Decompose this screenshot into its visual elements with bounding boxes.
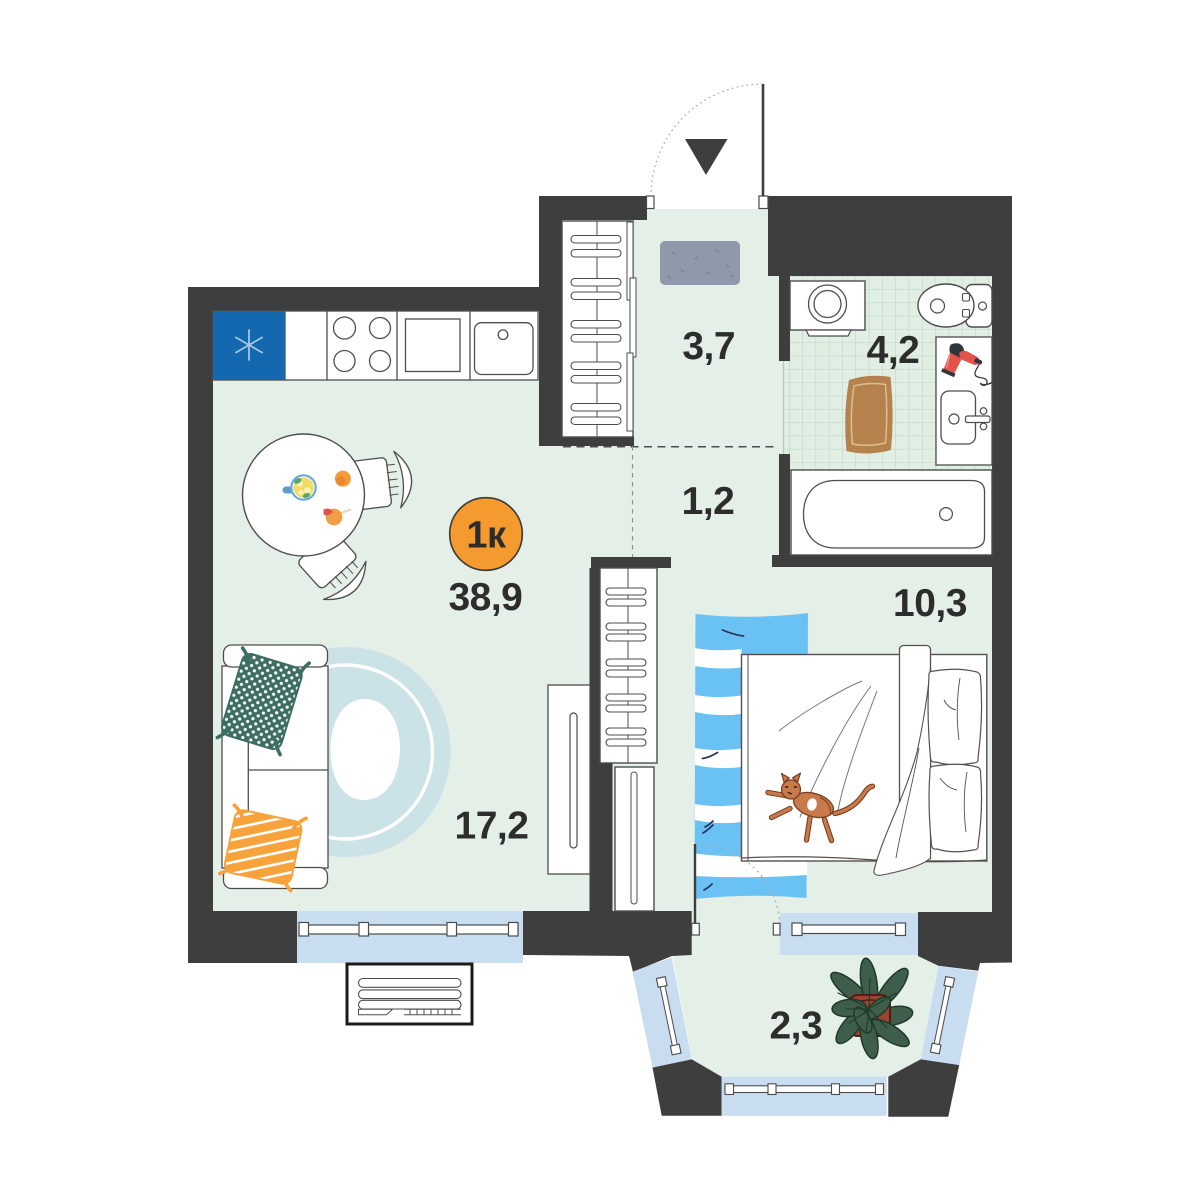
- svg-text:38,9: 38,9: [448, 576, 522, 619]
- svg-text:1к: 1к: [466, 515, 507, 557]
- svg-text:3,7: 3,7: [682, 325, 735, 368]
- svg-text:4,2: 4,2: [867, 329, 920, 372]
- svg-text:17,2: 17,2: [455, 805, 529, 848]
- svg-text:2,3: 2,3: [769, 1005, 822, 1048]
- svg-text:10,3: 10,3: [893, 582, 967, 625]
- svg-text:1,2: 1,2: [682, 480, 735, 523]
